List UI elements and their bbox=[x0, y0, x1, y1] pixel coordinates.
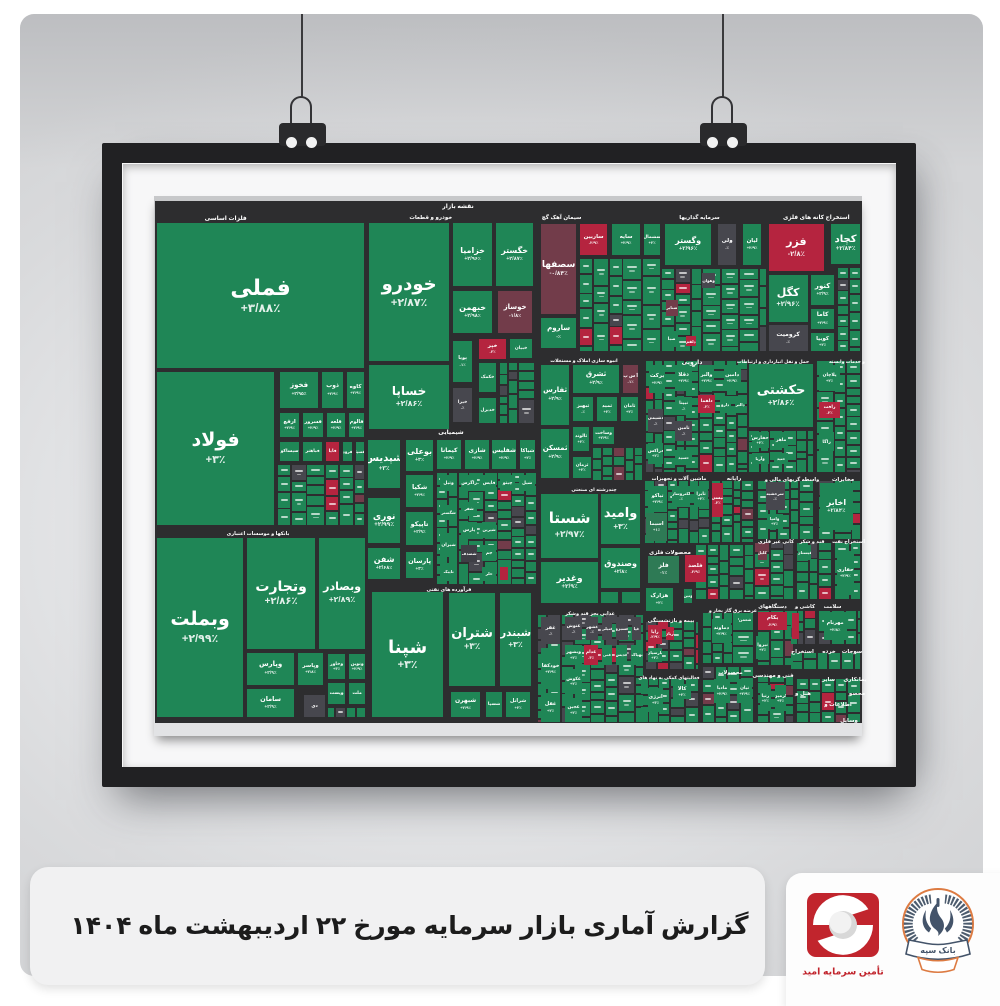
svg-text:تأمین سرمایه امید: تأمین سرمایه امید bbox=[802, 966, 883, 978]
svg-text:بانک سپه: بانک سپه bbox=[920, 946, 955, 955]
